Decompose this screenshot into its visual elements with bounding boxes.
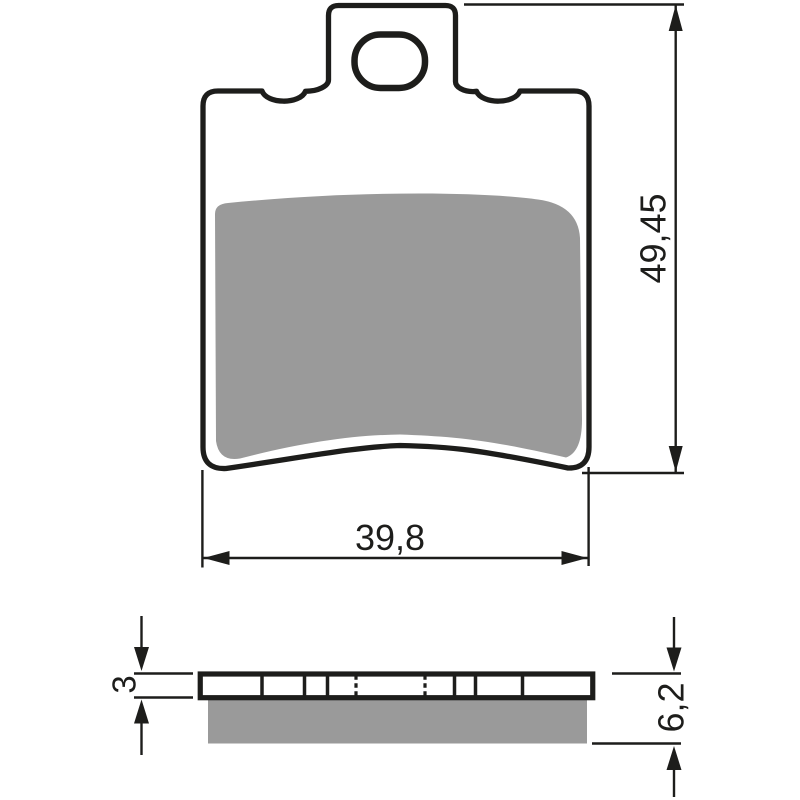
svg-text:6,2: 6,2 [651,682,692,732]
svg-text:39,8: 39,8 [355,517,425,558]
svg-text:3: 3 [106,675,143,693]
svg-text:49,45: 49,45 [633,193,674,283]
